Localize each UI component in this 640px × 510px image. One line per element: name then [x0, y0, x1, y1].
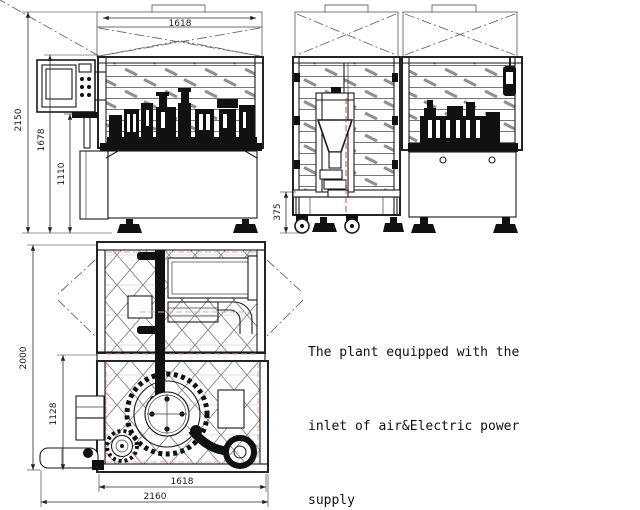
outfeed-conveyor [40, 448, 104, 470]
side-casters [295, 214, 404, 233]
dim-plan-overall-width: 2160 [41, 470, 268, 507]
dim-base-height-value: 375 [273, 203, 283, 220]
front-hood [0, 0, 262, 57]
dim-front-width-value: 1618 [169, 19, 192, 29]
dim-frame-height-value: 1678 [37, 128, 47, 151]
dim-plan-overall-width-value: 2160 [144, 492, 167, 502]
end-base [409, 152, 518, 233]
panel-support-arm [72, 112, 98, 148]
note-line-3: supply [308, 489, 628, 510]
dim-plan-width: 1618 [99, 474, 266, 492]
dim-overall-height-value: 2150 [14, 108, 24, 131]
machine-layout-drawing: 1618 [0, 0, 640, 510]
control-panel [37, 60, 106, 112]
side-hood [295, 5, 398, 57]
dim-plan-partial-depth-value: 1128 [49, 402, 59, 425]
plan-view: 2000 1128 1618 2160 [19, 242, 303, 507]
note-line-1: The plant equipped with the [308, 341, 628, 366]
note-line-2: inlet of air&Electric power [308, 415, 628, 440]
dim-plan-width-value: 1618 [171, 477, 194, 487]
front-view: 1618 [0, 0, 263, 233]
end-hood [403, 5, 517, 57]
notes-block: The plant equipped with the inlet of air… [308, 292, 628, 510]
dim-plan-depth-value: 2000 [19, 346, 29, 369]
front-base [80, 151, 258, 233]
dim-table-height-value: 1110 [57, 162, 67, 185]
side-view: 375 [273, 5, 404, 233]
dim-table-height: 1110 [57, 114, 80, 233]
end-view [402, 5, 522, 233]
left-protrusion [76, 396, 104, 440]
